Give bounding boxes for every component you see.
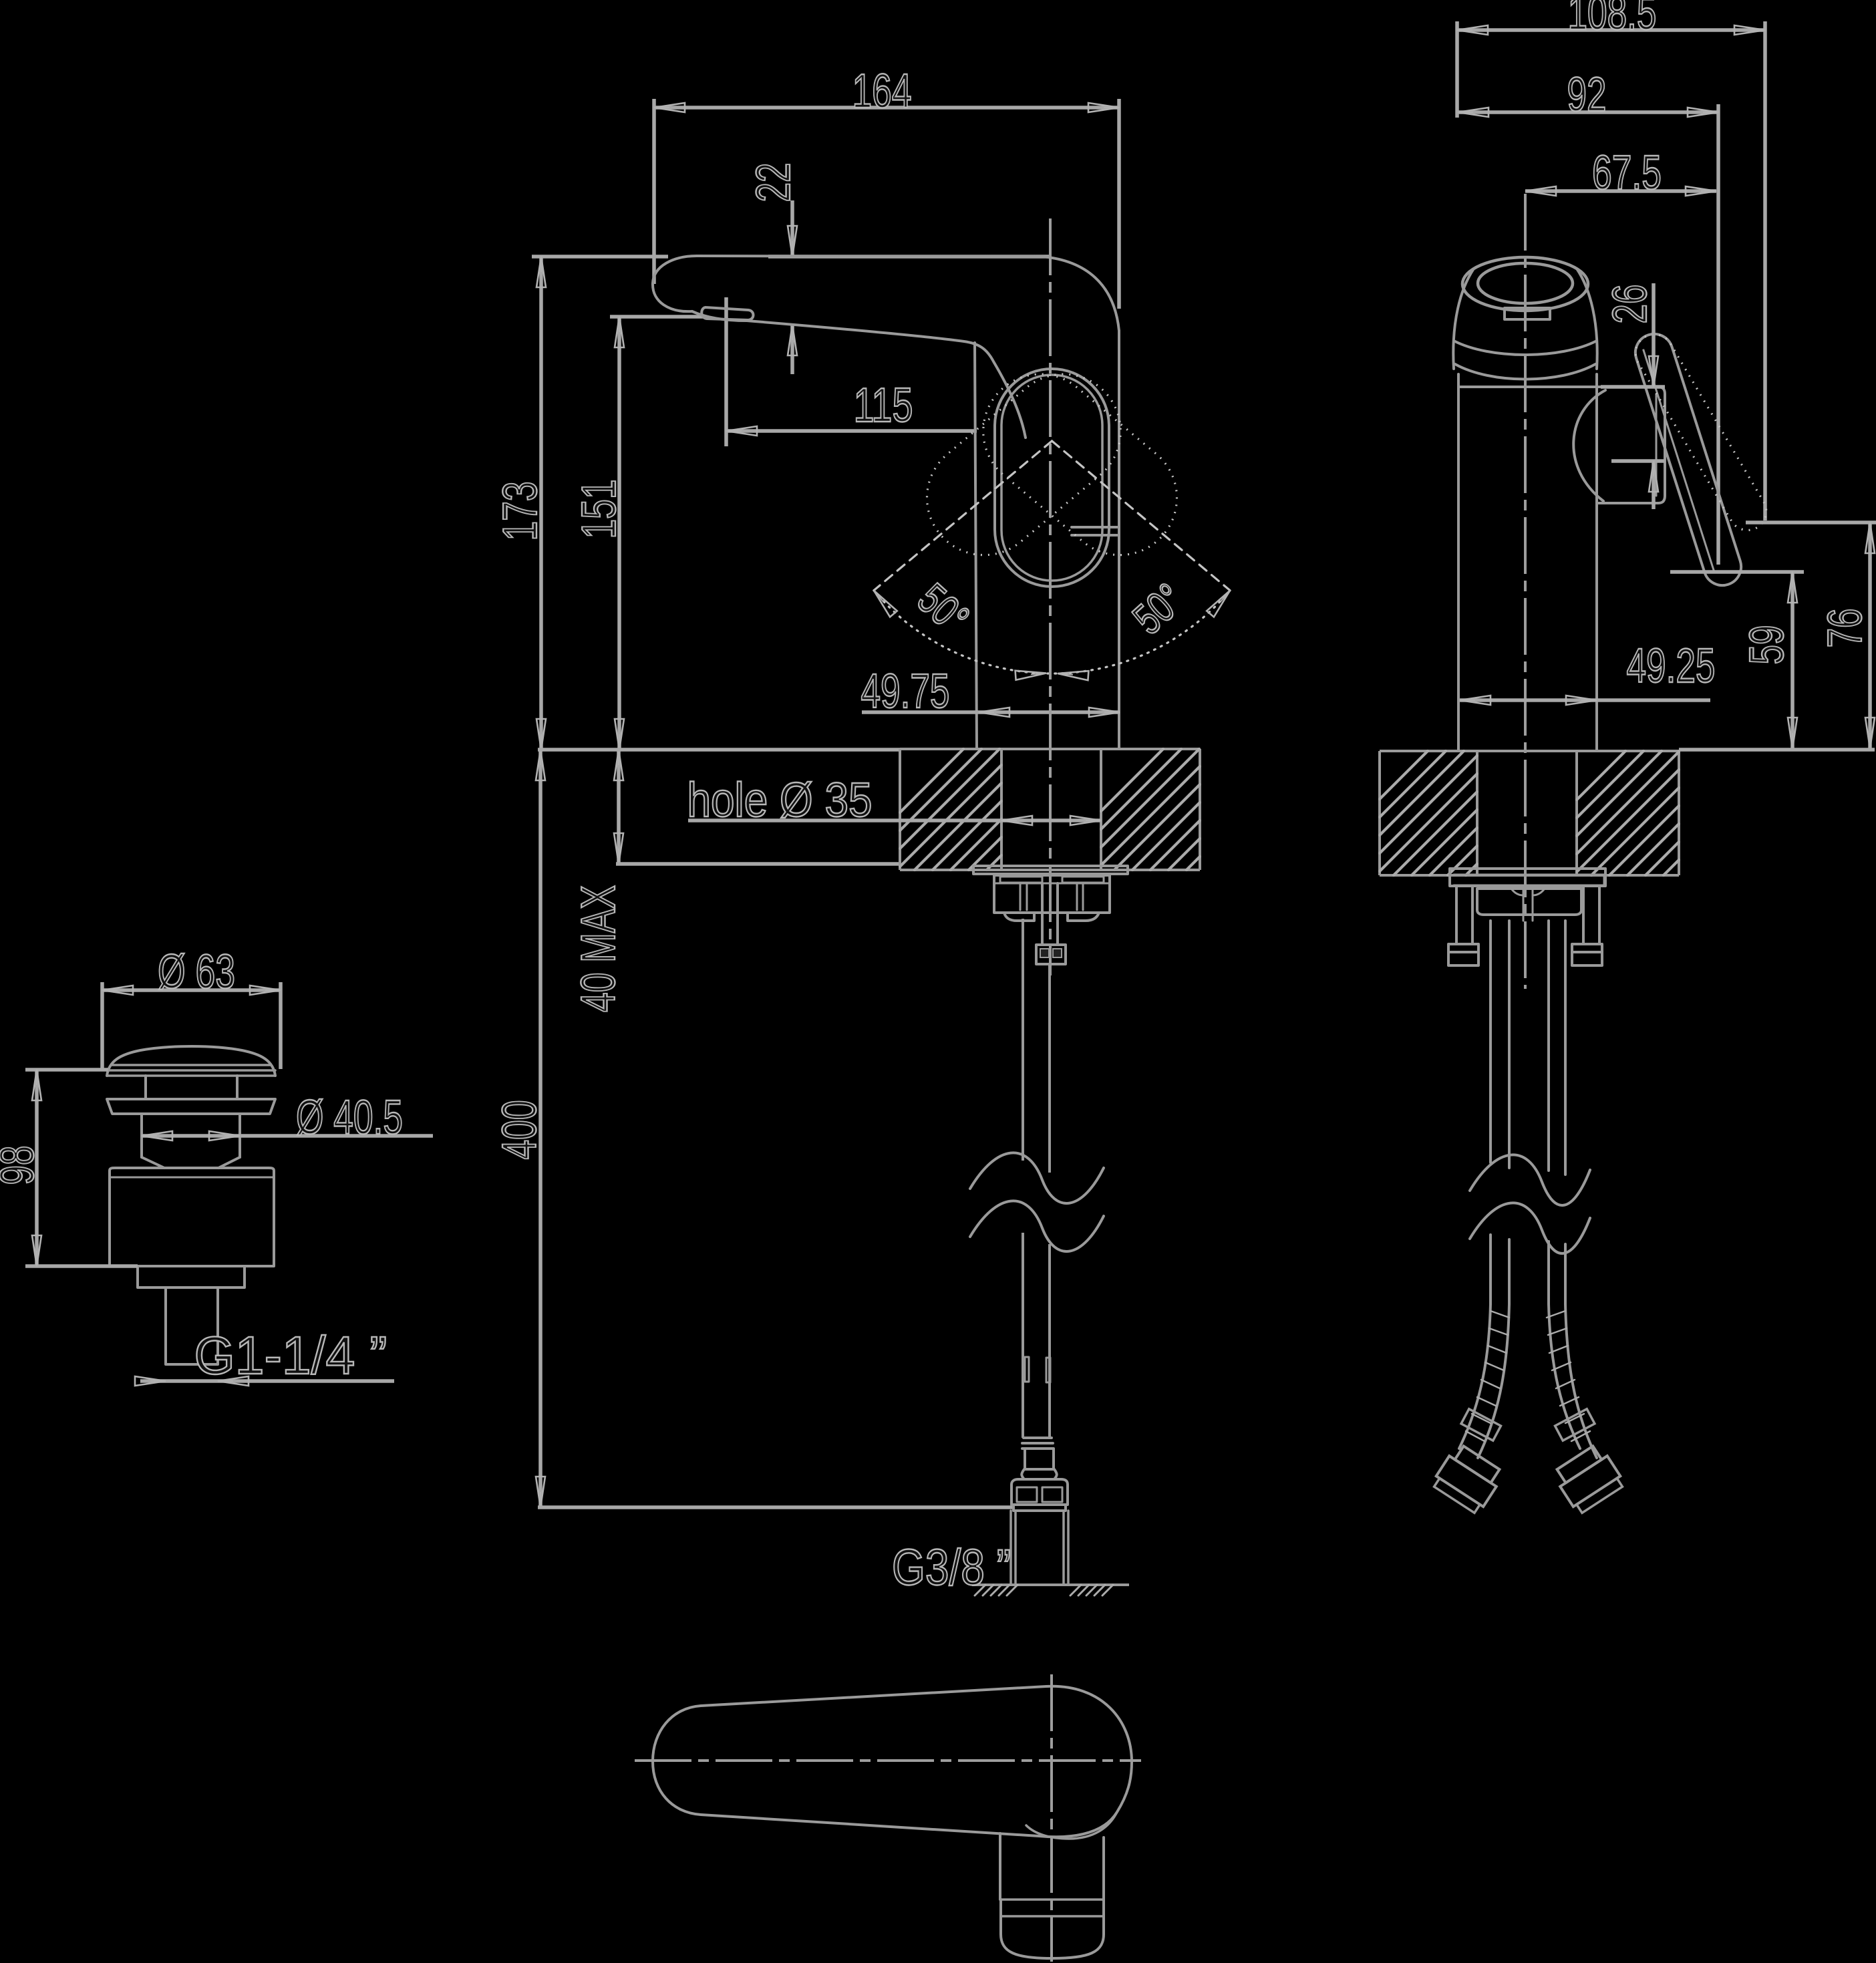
- svg-text:Ø 63: Ø 63: [158, 945, 235, 999]
- svg-text:49.25: 49.25: [1627, 639, 1716, 693]
- svg-text:40 MAX: 40 MAX: [572, 885, 625, 1012]
- svg-text:67.5: 67.5: [1592, 146, 1662, 200]
- svg-text:400: 400: [493, 1100, 546, 1160]
- svg-text:49.75: 49.75: [861, 665, 950, 718]
- svg-text:98: 98: [0, 1146, 44, 1185]
- svg-text:92: 92: [1567, 68, 1607, 122]
- svg-text:G3/8 ”: G3/8 ”: [892, 1539, 1011, 1596]
- svg-text:173: 173: [494, 482, 547, 541]
- svg-text:26: 26: [1603, 285, 1657, 324]
- svg-text:hole Ø 35: hole Ø 35: [687, 774, 873, 827]
- svg-text:G1-1/4 ”: G1-1/4 ”: [194, 1326, 387, 1385]
- svg-text:115: 115: [854, 379, 913, 432]
- svg-text:151: 151: [573, 480, 626, 539]
- svg-text:22: 22: [747, 163, 800, 202]
- svg-text:59: 59: [1740, 625, 1794, 665]
- svg-text:164: 164: [852, 65, 912, 118]
- svg-text:Ø 40.5: Ø 40.5: [296, 1091, 403, 1145]
- svg-text:76: 76: [1819, 609, 1872, 648]
- svg-text:108.5: 108.5: [1568, 0, 1657, 40]
